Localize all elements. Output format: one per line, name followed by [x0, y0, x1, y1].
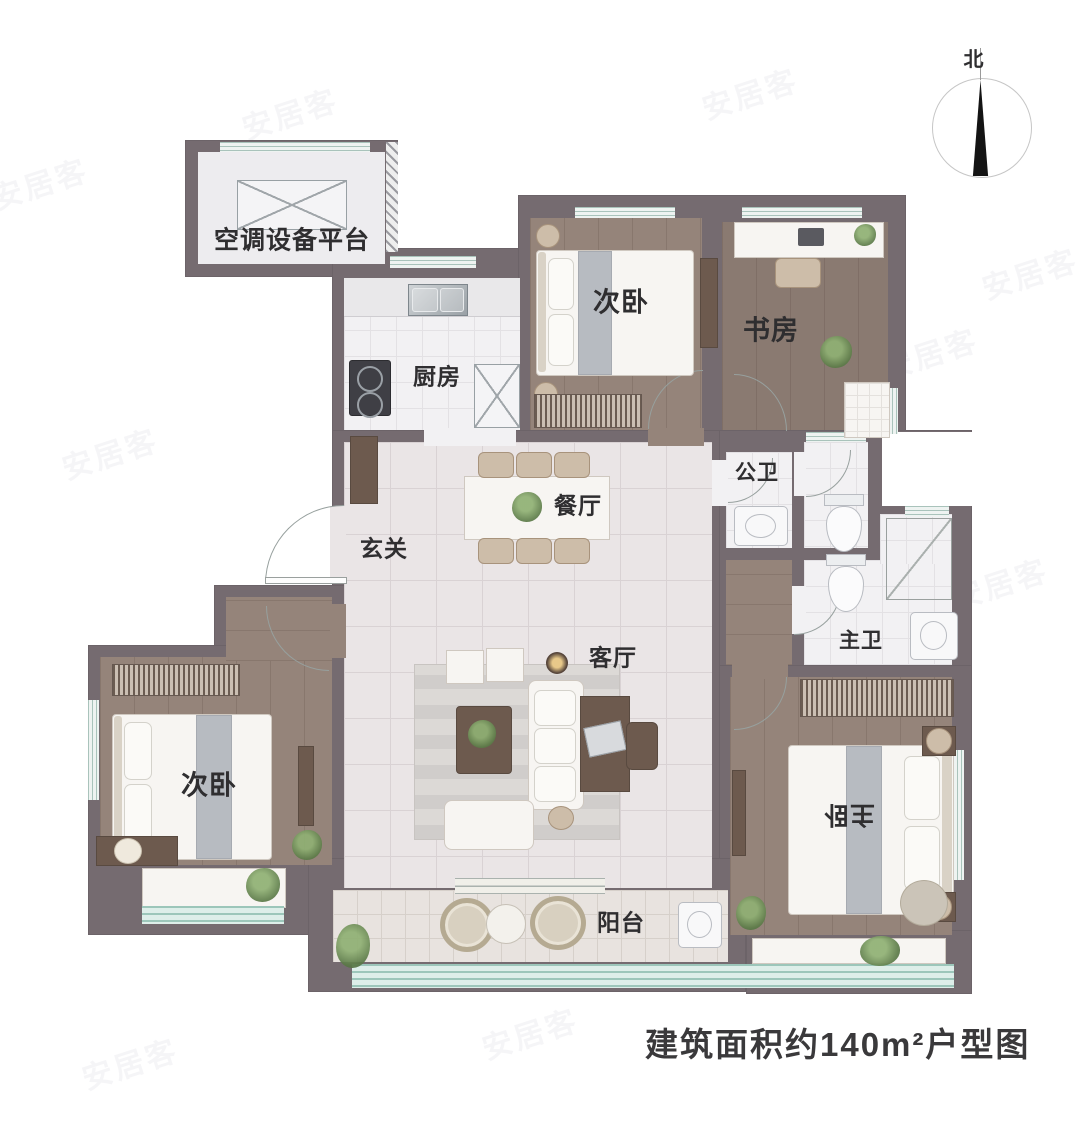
study-plant — [820, 336, 852, 368]
bed-top-headboard — [538, 252, 546, 372]
public-bath-sink — [734, 506, 788, 546]
work-chair — [626, 722, 658, 770]
floor-corridor — [726, 560, 792, 665]
left-bedroom-sill-plant — [246, 868, 280, 902]
left-bedroom-bench — [298, 746, 314, 826]
opening-toilet-compartment — [794, 452, 806, 496]
shoe-cabinet — [350, 436, 378, 504]
window-kitchen — [390, 256, 476, 268]
master-bath-label: 主卫 — [839, 631, 883, 652]
dining-chair-6 — [554, 538, 590, 564]
window-master-bedroom — [953, 750, 964, 880]
watermark: 安居客 — [0, 146, 93, 218]
living-stool-1 — [446, 650, 484, 684]
bedroom-top-wardrobe — [534, 394, 642, 428]
dining-chair-5 — [516, 538, 552, 564]
kitchen-label: 厨房 — [413, 366, 461, 389]
fridge — [474, 364, 520, 428]
shower — [886, 518, 952, 600]
living-stool-2 — [486, 648, 524, 682]
balcony-sliding-door — [455, 878, 605, 894]
window-bedroom-top — [575, 207, 675, 218]
bedroom-top-pouf-1 — [536, 224, 560, 248]
bedroom-left-label: 次卧 — [181, 773, 237, 800]
entry-label: 玄关 — [360, 538, 408, 561]
sofa-cushion-2 — [534, 728, 576, 764]
window-shower — [905, 506, 949, 517]
floor-lamp — [546, 652, 568, 674]
floor-plan: 安居客 安居客 安居客 安居客 安居客 安居客 安居客 安居客 安居客 安居客 … — [0, 0, 1080, 1124]
left-bed-headboard — [114, 716, 122, 856]
master-round-rug — [900, 880, 948, 926]
balcony-chair-2 — [530, 896, 586, 950]
loveseat — [444, 800, 534, 850]
living-label: 客厅 — [589, 647, 637, 670]
watermark: 安居客 — [696, 56, 804, 128]
left-bed-pillow-2 — [124, 784, 152, 842]
ac-platform-label: 空调设备平台 — [214, 229, 370, 254]
sofa-cushion-1 — [534, 690, 576, 726]
stove-burner-2 — [357, 392, 383, 418]
watermark: 安居客 — [976, 236, 1080, 308]
dining-chair-4 — [478, 538, 514, 564]
balcony-basin — [678, 902, 722, 948]
opening-public-bath — [712, 460, 728, 506]
dining-chair-3 — [554, 452, 590, 478]
entrance-door-leaf — [265, 577, 347, 584]
study-desk-plant — [854, 224, 876, 246]
washer — [844, 382, 890, 438]
study-chair — [775, 258, 821, 288]
left-bedroom-plant — [292, 830, 322, 860]
bedroom-top-label: 次卧 — [593, 290, 649, 317]
area-caption: 建筑面积约140m²户型图 — [645, 1018, 1030, 1066]
master-bath-sink — [910, 612, 958, 660]
left-bedroom-glass — [142, 906, 284, 924]
sink-basin-left — [412, 288, 438, 312]
master-nightstand-top-1 — [926, 728, 952, 754]
balcony-label: 阳台 — [597, 912, 645, 935]
dining-label: 餐厅 — [554, 495, 602, 518]
watermark: 安居客 — [56, 416, 164, 488]
master-plant — [736, 896, 766, 930]
master-tv-cabinet — [732, 770, 746, 856]
balcony-plant — [336, 924, 370, 968]
balcony-glass-railing — [352, 964, 954, 988]
study-laptop — [798, 228, 824, 246]
watermark: 安居客 — [476, 996, 584, 1068]
left-bedroom-wardrobe — [112, 664, 240, 696]
compass-north-label: 北 — [964, 50, 985, 70]
opening-bedroom-top — [648, 428, 704, 446]
window-ac-platform — [220, 142, 370, 152]
master-bed-headboard — [942, 747, 952, 911]
bedroom-top-cabinet — [700, 258, 718, 348]
sink-basin-right — [440, 288, 464, 312]
bed-top-pillow-1 — [548, 258, 574, 310]
toilet-tank-1 — [824, 494, 864, 506]
master-bedroom-label: 主卧 — [823, 802, 875, 827]
coffee-table-plant — [468, 720, 496, 748]
master-window-sill — [752, 938, 946, 964]
opening-left-bedroom — [330, 604, 346, 658]
watermark: 安居客 — [236, 76, 344, 148]
dining-table-plant — [512, 492, 542, 522]
stove-burner-1 — [357, 366, 383, 392]
ac-equipment-box — [237, 180, 347, 230]
master-sill-plant — [860, 936, 900, 966]
master-bed-runner — [846, 746, 882, 914]
left-bedroom-pouf — [114, 838, 142, 864]
toilet-tank-2 — [826, 554, 866, 566]
bed-top-pillow-2 — [548, 314, 574, 366]
balcony-table — [486, 904, 526, 944]
dining-chair-2 — [516, 452, 552, 478]
sofa-cushion-3 — [534, 766, 576, 802]
window-study — [742, 207, 862, 218]
master-pillow-1 — [904, 756, 940, 820]
living-pouf — [548, 806, 574, 830]
public-bath-label: 公卫 — [735, 463, 779, 484]
left-bed-pillow-1 — [124, 722, 152, 780]
watermark: 安居客 — [76, 1026, 184, 1098]
opening-kitchen — [424, 428, 516, 446]
window-left-bedroom — [88, 700, 99, 800]
study-label: 书房 — [743, 318, 799, 345]
exterior-notch — [882, 432, 972, 506]
entrance-door-arc — [265, 505, 344, 584]
master-wardrobe — [800, 679, 954, 717]
dining-chair-1 — [478, 452, 514, 478]
grille-ac-platform — [386, 142, 398, 252]
